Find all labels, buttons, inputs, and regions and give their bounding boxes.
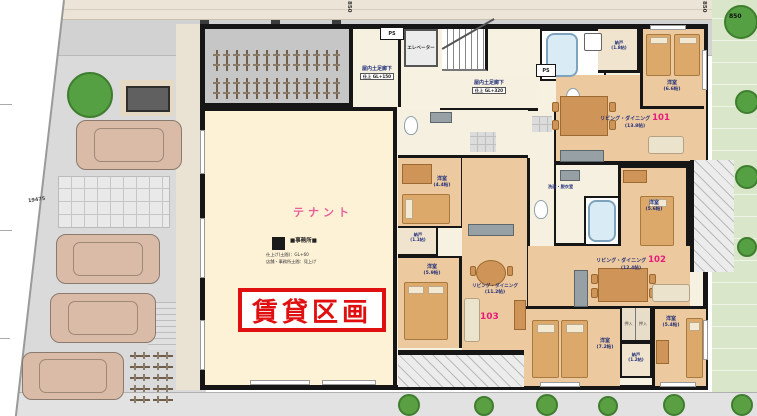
unit-103-ld-label: リビング・ダイニング(11.2帖) — [462, 284, 528, 296]
unit-101-storage — [598, 29, 640, 73]
bicycle-rack-top-row1 — [213, 50, 340, 71]
washbasin-icon — [560, 170, 580, 181]
road-top-line — [0, 9, 757, 10]
bush — [598, 396, 618, 416]
kitchen-counter — [468, 224, 514, 236]
terrace — [398, 350, 524, 387]
unit-101-storage-label: 納戸(1.8帖) — [600, 40, 638, 51]
bicycle-rack-top-row2 — [213, 78, 340, 99]
washbasin-icon — [430, 112, 452, 123]
bush — [731, 394, 753, 416]
unit-102-storage-label: 納戸(1.2帖) — [621, 352, 651, 363]
window — [200, 320, 205, 370]
rental-section-badge: 賃貸区画 — [238, 288, 386, 332]
window — [540, 382, 580, 387]
unit-102-closets: 押入 押入 — [620, 306, 652, 342]
unit-103-bedroom2-label: 洋室(5.9帖) — [408, 264, 456, 276]
pipe-space: PS — [380, 27, 404, 40]
chair — [591, 288, 598, 298]
desk — [656, 340, 669, 364]
window — [703, 320, 708, 360]
chair — [552, 102, 559, 112]
entry-tile — [470, 132, 496, 152]
chair — [591, 274, 598, 284]
corridor-left-label: 屋内土足廊下仕上 GL+150 — [352, 66, 402, 80]
toilet-icon — [404, 116, 418, 135]
corridor-main-label: 屋内土足廊下仕上 GL+320 — [442, 80, 536, 94]
bed — [686, 318, 703, 378]
tenant-label: テナント — [268, 206, 378, 220]
tenant-room — [205, 107, 397, 385]
survey-tick — [0, 104, 12, 105]
toilet-icon — [534, 200, 548, 219]
chair — [609, 102, 616, 112]
car — [76, 120, 182, 170]
chair — [552, 120, 559, 130]
pipe-space: PS — [536, 64, 556, 77]
window — [322, 380, 376, 385]
unit-102-number: 102 — [648, 255, 666, 266]
office-symbol — [272, 237, 285, 250]
bush — [536, 394, 558, 416]
dining-table — [598, 268, 648, 302]
corner-dimension: 850 — [729, 13, 742, 21]
tree — [67, 72, 113, 118]
bush — [474, 396, 494, 416]
car — [50, 293, 156, 343]
dimension-850-left: 850 — [346, 1, 352, 12]
unit-102-ld-label: リビング・ダイニング102 (12.4帖) — [592, 255, 670, 272]
road-top — [0, 0, 757, 20]
unit-103-storage-label: 納戸(1.1帖) — [399, 232, 437, 243]
bed — [402, 194, 450, 224]
tree — [735, 165, 757, 189]
rental-section-label: 賃貸区画 — [252, 292, 372, 329]
window — [200, 218, 205, 278]
chair — [470, 266, 476, 276]
trash-enclosure — [126, 86, 170, 112]
unit-102-entry-hall — [528, 112, 556, 246]
office-note-2: 店舗・事務所土間：見上げ — [266, 259, 316, 264]
car — [56, 234, 160, 284]
car — [22, 352, 124, 400]
office-label: ■事務所■ — [290, 238, 317, 245]
window — [200, 130, 205, 174]
bed — [646, 34, 671, 76]
window — [250, 380, 310, 385]
bed — [561, 320, 588, 378]
closet-label: 押入 — [636, 308, 650, 340]
window — [660, 382, 696, 387]
elevator-label: エレベーター — [407, 45, 435, 51]
sofa — [648, 136, 684, 154]
unit-101-bedroom-label: 洋室(6.6帖) — [648, 80, 696, 92]
chair — [507, 266, 513, 276]
sofa — [652, 284, 690, 302]
bathtub-icon — [588, 200, 616, 242]
bed — [674, 34, 700, 76]
unit-101-ld-label: リビング・ダイニング101 (13.8帖) — [596, 113, 674, 130]
unit-103-bedroom1-label: 洋室(4.4帖) — [420, 176, 464, 188]
tree — [735, 90, 757, 114]
bicycle-rack-left — [130, 352, 176, 403]
window — [702, 50, 707, 90]
unit-102-bedroom3-label: 洋室(5.4帖) — [654, 316, 688, 328]
unit-102-bedroom1-label: 洋室(5.6帖) — [630, 200, 678, 212]
kitchen-counter — [574, 270, 588, 307]
driveway-ramp — [690, 160, 734, 272]
bush — [663, 394, 685, 416]
tree — [737, 237, 757, 257]
elevator: エレベーター — [404, 29, 438, 67]
sofa — [464, 298, 480, 342]
desk — [623, 170, 647, 183]
window — [650, 25, 686, 30]
survey-tick — [0, 338, 10, 339]
unit-102-bedroom2-label: 洋室(7.2帖) — [588, 338, 622, 350]
walkway — [176, 24, 202, 390]
cabinet — [514, 300, 526, 330]
survey-tick — [0, 230, 12, 231]
bed — [404, 282, 448, 340]
washroom-102-label: 洗面・脱衣室 — [548, 184, 573, 189]
chair — [649, 274, 656, 284]
kitchen-counter — [560, 150, 604, 162]
closet-label: 押入 — [622, 308, 636, 340]
entry-tile — [532, 116, 552, 132]
office-note-1: 仕上げ(土間)：GL+60 — [266, 252, 309, 257]
tree — [724, 5, 757, 39]
round-table — [476, 260, 506, 286]
unit-103-number: 103 — [480, 312, 499, 324]
unit-101-number: 101 — [652, 113, 670, 124]
bush — [398, 394, 420, 416]
unit-103-service — [398, 110, 528, 158]
parking-stall-grid — [58, 176, 170, 228]
bed — [532, 320, 559, 378]
dimension-850-right: 850 — [701, 1, 707, 12]
floor-plan: 850 19475 テナント ■事務所■ 仕上げ(土間)：GL+60 店舗・事務… — [0, 0, 757, 416]
